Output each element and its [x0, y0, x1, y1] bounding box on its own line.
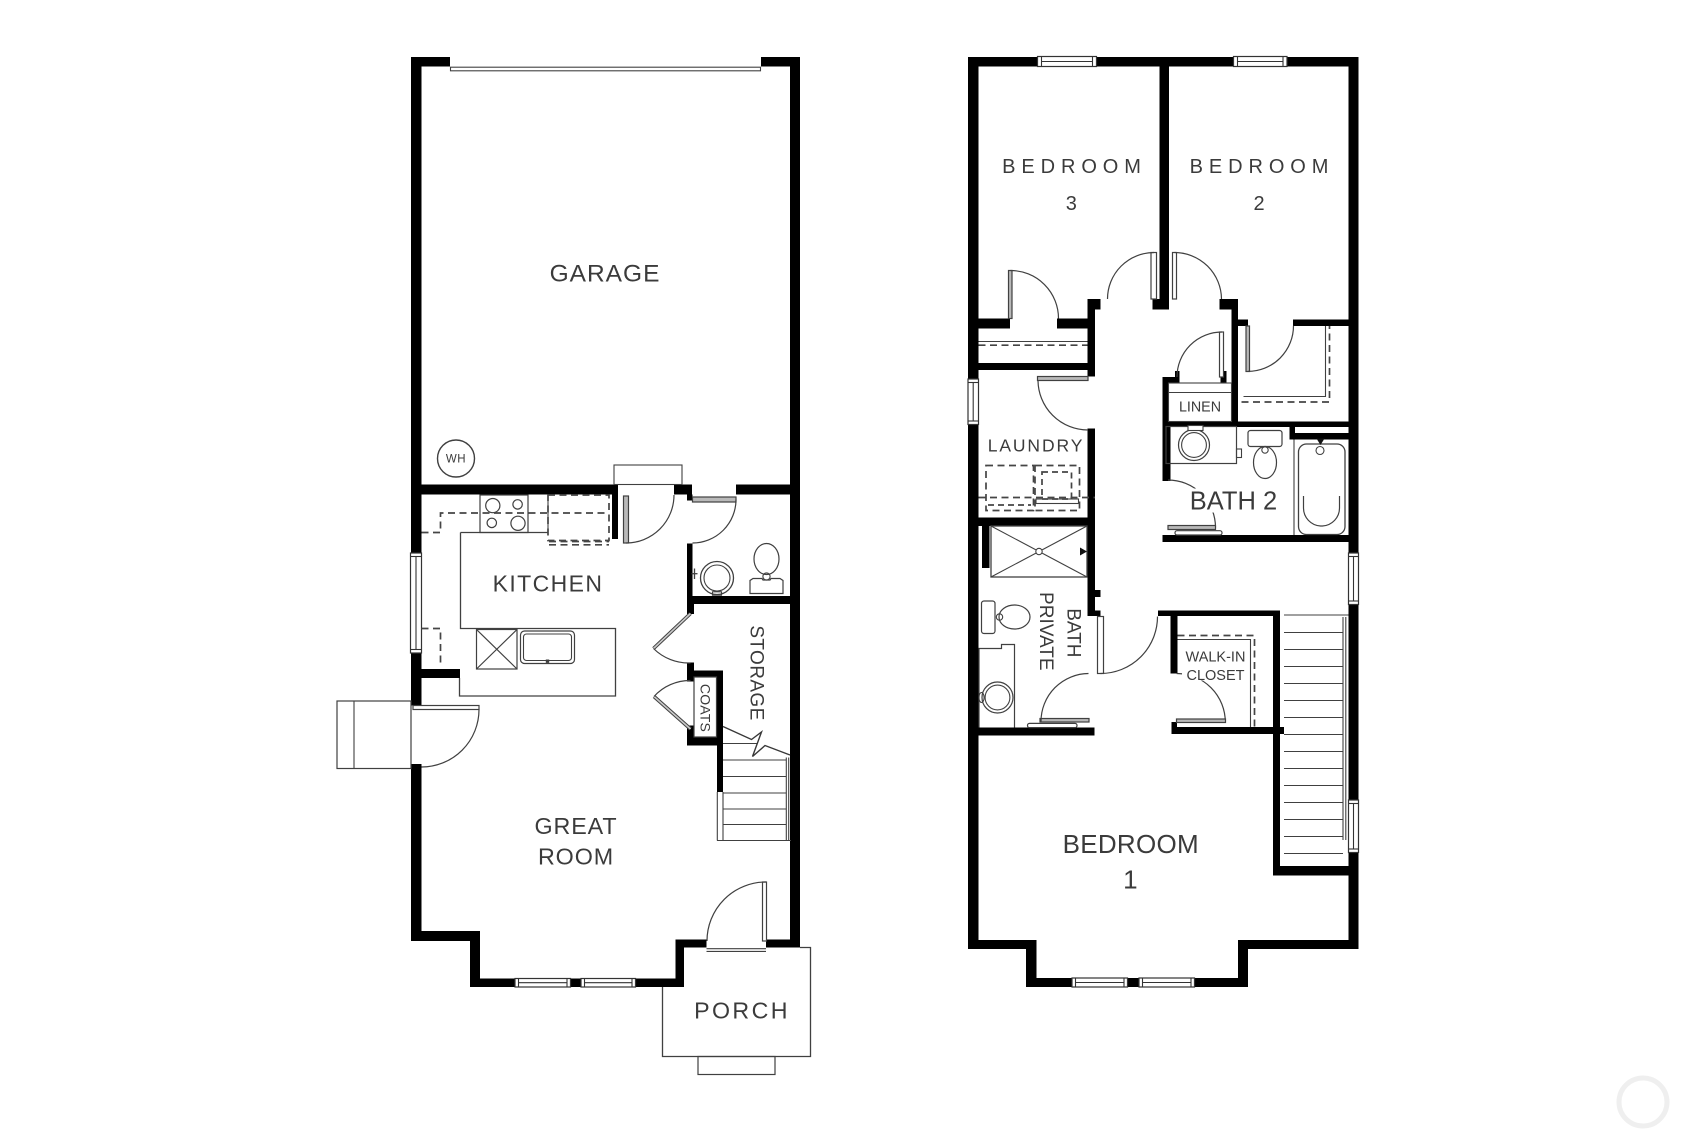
- svg-text:1: 1: [1123, 865, 1138, 895]
- svg-text:BATH: BATH: [1062, 608, 1083, 657]
- svg-text:2: 2: [1253, 193, 1270, 215]
- svg-text:GREAT: GREAT: [534, 813, 617, 839]
- svg-text:PORCH: PORCH: [694, 998, 790, 1024]
- svg-text:WH: WH: [446, 454, 466, 466]
- svg-text:LINEN: LINEN: [1179, 400, 1221, 416]
- svg-text:PRIVATE: PRIVATE: [1035, 592, 1056, 670]
- svg-text:KITCHEN: KITCHEN: [493, 571, 604, 597]
- svg-text:COATS: COATS: [698, 684, 714, 732]
- svg-text:WALK-IN: WALK-IN: [1186, 650, 1246, 666]
- svg-text:BEDROOM: BEDROOM: [1002, 156, 1147, 178]
- svg-text:GARAGE: GARAGE: [550, 261, 661, 288]
- svg-text:STORAGE: STORAGE: [746, 625, 767, 720]
- svg-text:CLOSET: CLOSET: [1186, 668, 1244, 684]
- svg-text:BATH 2: BATH 2: [1190, 488, 1277, 516]
- svg-text:LAUNDRY: LAUNDRY: [988, 436, 1085, 456]
- svg-text:BEDROOM: BEDROOM: [1190, 156, 1335, 178]
- svg-text:3: 3: [1066, 193, 1083, 215]
- svg-text:BEDROOM: BEDROOM: [1063, 829, 1199, 859]
- svg-text:ROOM: ROOM: [538, 844, 614, 870]
